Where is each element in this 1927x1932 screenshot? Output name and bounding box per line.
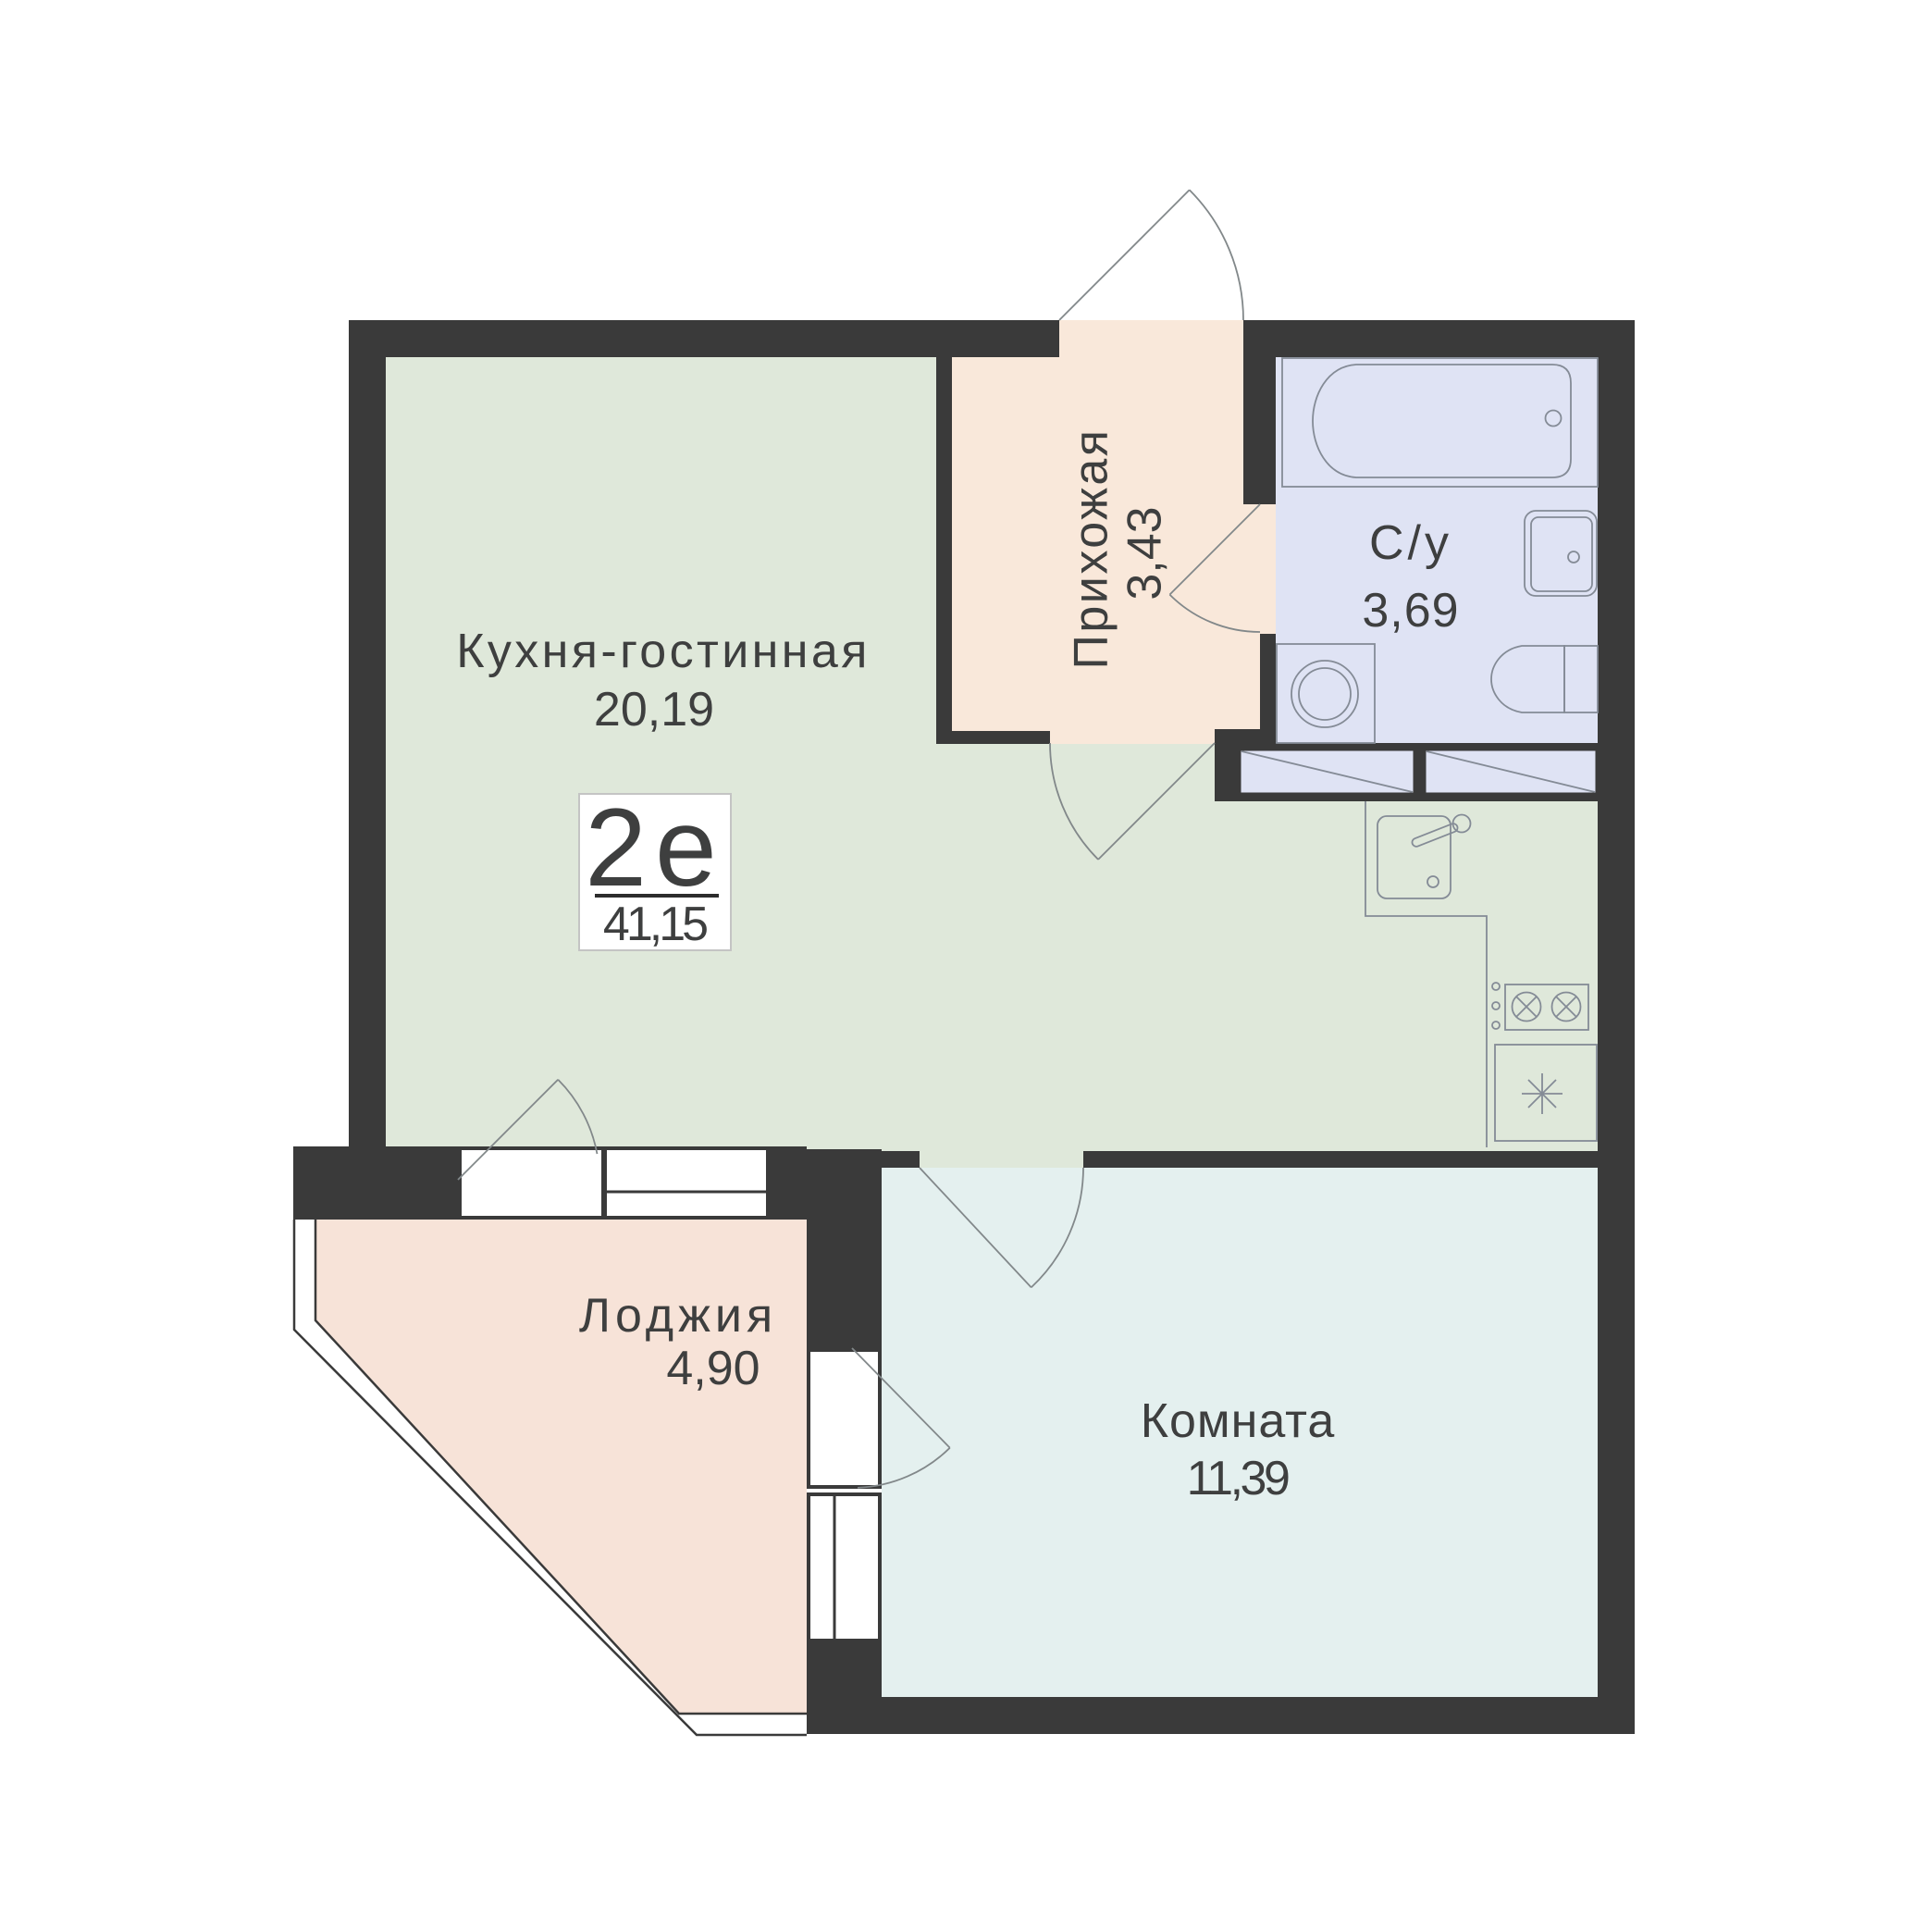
svg-text:3,69: 3,69 [1362,584,1459,638]
svg-text:11,39: 11,39 [1187,1452,1289,1505]
svg-text:Прихожая: Прихожая [1065,428,1118,670]
svg-text:3,43: 3,43 [1118,506,1172,600]
svg-text:С/у: С/у [1369,516,1452,570]
svg-text:41,15: 41,15 [603,898,707,951]
svg-text:20,19: 20,19 [594,683,714,737]
svg-text:4,90: 4,90 [666,1342,760,1395]
svg-text:Лоджия: Лоджия [579,1289,777,1343]
svg-text:Комната: Комната [1141,1394,1336,1448]
svg-text:2е: 2е [585,786,724,910]
svg-text:Кухня-гостинная: Кухня-гостинная [456,625,871,678]
